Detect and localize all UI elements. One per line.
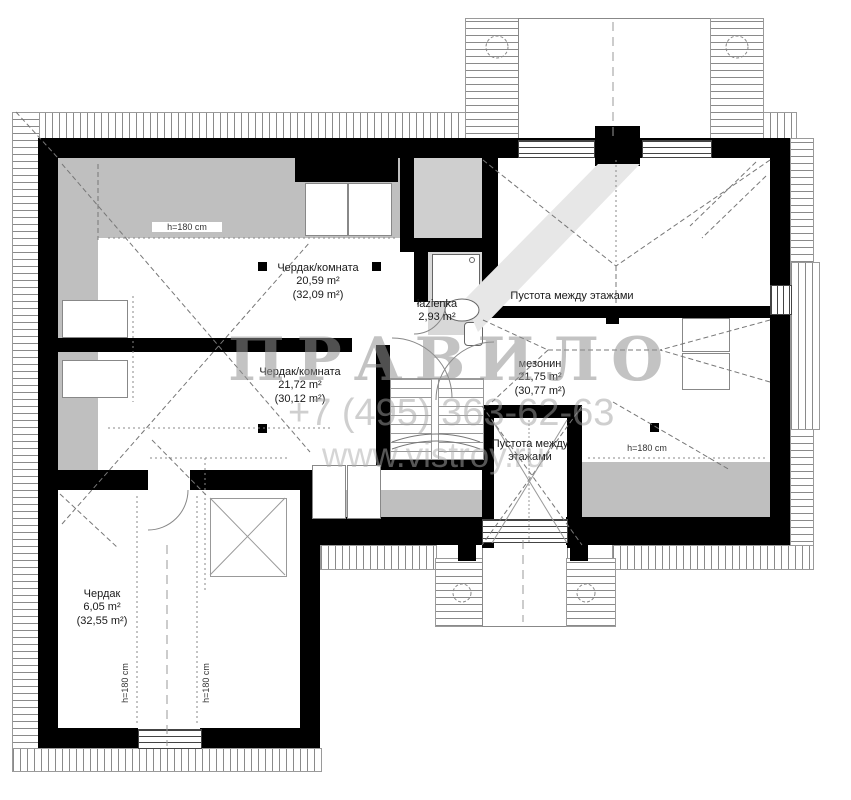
wall-attic-bottom-b bbox=[200, 728, 320, 748]
skylight-shaft-lower bbox=[62, 360, 128, 398]
cabinet-right bbox=[347, 465, 381, 519]
roof-dormer-right bbox=[790, 262, 820, 430]
room-name: мезонин bbox=[480, 358, 600, 371]
shower-tray bbox=[432, 254, 480, 302]
top-dormer-left-panel bbox=[465, 18, 520, 142]
room-label-mezzanine: мезонин 21,75 m² (30,77 m²) bbox=[480, 358, 600, 398]
room-label-void-shaft: Пустота между этажами bbox=[489, 438, 571, 465]
wall-bottom-left-segment bbox=[300, 517, 482, 545]
wall-bathroom-left bbox=[414, 252, 428, 302]
cabinet-left bbox=[312, 465, 346, 519]
wall-attic-top-b bbox=[190, 470, 300, 490]
low-zone-bottom-right bbox=[582, 462, 770, 517]
attic-floor-plan: Чердак/комната 20,59 m² (32,09 m²) Черда… bbox=[0, 0, 851, 800]
height-mark-room1: h=180 cm bbox=[152, 222, 222, 232]
room-label-attic-room-2: Чердак/комната 21,72 m² (30,12 m²) bbox=[225, 366, 375, 406]
room-label-attic: Чердак 6,05 m² (32,55 m²) bbox=[42, 588, 162, 628]
room-area: 2,93 m² bbox=[400, 311, 474, 324]
room-label-void-top: Пустота между этажами bbox=[490, 290, 654, 303]
stair-rail bbox=[431, 379, 439, 459]
room-name: łazienka bbox=[400, 298, 474, 311]
wall-right bbox=[770, 138, 790, 545]
window-top-left bbox=[518, 140, 595, 158]
room-name: Чердак/комната bbox=[225, 366, 375, 379]
top-dormer-right-panel bbox=[710, 18, 764, 142]
room-name: Чердак/комната bbox=[240, 262, 396, 275]
room-label-bathroom: łazienka 2,93 m² bbox=[400, 298, 474, 325]
wardrobe-right bbox=[348, 183, 392, 236]
post-mezzanine-top bbox=[606, 311, 619, 324]
room-label-attic-room-1: Чердак/комната 20,59 m² (32,09 m²) bbox=[240, 262, 396, 302]
wall-stair-left bbox=[376, 345, 390, 470]
roof-overhang-top-right bbox=[762, 112, 797, 140]
room-area-total: (30,77 m²) bbox=[480, 385, 600, 398]
duct-zone bbox=[414, 158, 482, 240]
roof-overhang-bottom-right bbox=[612, 545, 814, 570]
room-area: 20,59 m² bbox=[240, 275, 396, 288]
room-name: Пустота между этажами bbox=[489, 438, 571, 465]
post-mezzanine bbox=[650, 423, 659, 432]
mezzanine-furniture-a bbox=[682, 318, 730, 352]
room-area: 21,75 m² bbox=[480, 371, 600, 384]
post-room2 bbox=[258, 424, 267, 433]
wall-bottom-dormer-right bbox=[570, 545, 588, 561]
shaft-box bbox=[210, 498, 287, 577]
roof-overhang-top bbox=[16, 112, 467, 140]
top-dormer-middle bbox=[518, 18, 712, 142]
toilet bbox=[464, 322, 483, 346]
wall-room-divider bbox=[58, 338, 352, 352]
room-area: 21,72 m² bbox=[225, 379, 375, 392]
window-right-wall bbox=[770, 285, 792, 315]
wall-bathroom-top bbox=[414, 238, 482, 252]
wall-corridor-left bbox=[400, 158, 414, 252]
wall-left bbox=[38, 158, 58, 748]
room-area: 6,05 m² bbox=[42, 601, 162, 614]
mezzanine-furniture-b bbox=[682, 353, 730, 390]
roof-overhang-bottom-left bbox=[12, 748, 322, 772]
roof-overhang-bottom-mid bbox=[320, 545, 437, 570]
room-name: Пустота между этажами bbox=[490, 290, 654, 303]
height-mark-attic-left: h=180 cm bbox=[120, 651, 130, 715]
chimney-block bbox=[595, 126, 640, 166]
wall-mezzanine-top bbox=[482, 306, 770, 318]
skylight-shaft-upper bbox=[62, 300, 128, 338]
room-name: Чердак bbox=[42, 588, 162, 601]
wall-attic-bottom-a bbox=[38, 728, 138, 748]
window-bottom-dormer bbox=[482, 519, 568, 543]
window-attic-bottom bbox=[138, 729, 202, 749]
wall-bottom-right-segment bbox=[566, 517, 790, 545]
staircase bbox=[390, 378, 484, 460]
bottom-dormer-right-panel bbox=[566, 558, 616, 627]
room-area-total: (30,12 m²) bbox=[225, 393, 375, 406]
bottom-dormer-middle bbox=[482, 540, 568, 627]
roof-overhang-left bbox=[12, 112, 40, 772]
height-mark-mezzanine: h=180 cm bbox=[612, 443, 682, 453]
room-area-total: (32,09 m²) bbox=[240, 289, 396, 302]
bottom-dormer-left-panel bbox=[435, 558, 484, 627]
room-area-total: (32,55 m²) bbox=[42, 615, 162, 628]
wall-attic-top-a bbox=[58, 470, 148, 490]
wall-niche bbox=[295, 158, 398, 182]
wardrobe-left bbox=[305, 183, 348, 236]
wall-bottom-dormer-left bbox=[458, 545, 476, 561]
window-top-right bbox=[642, 140, 712, 158]
height-mark-attic-right: h=180 cm bbox=[201, 651, 211, 715]
